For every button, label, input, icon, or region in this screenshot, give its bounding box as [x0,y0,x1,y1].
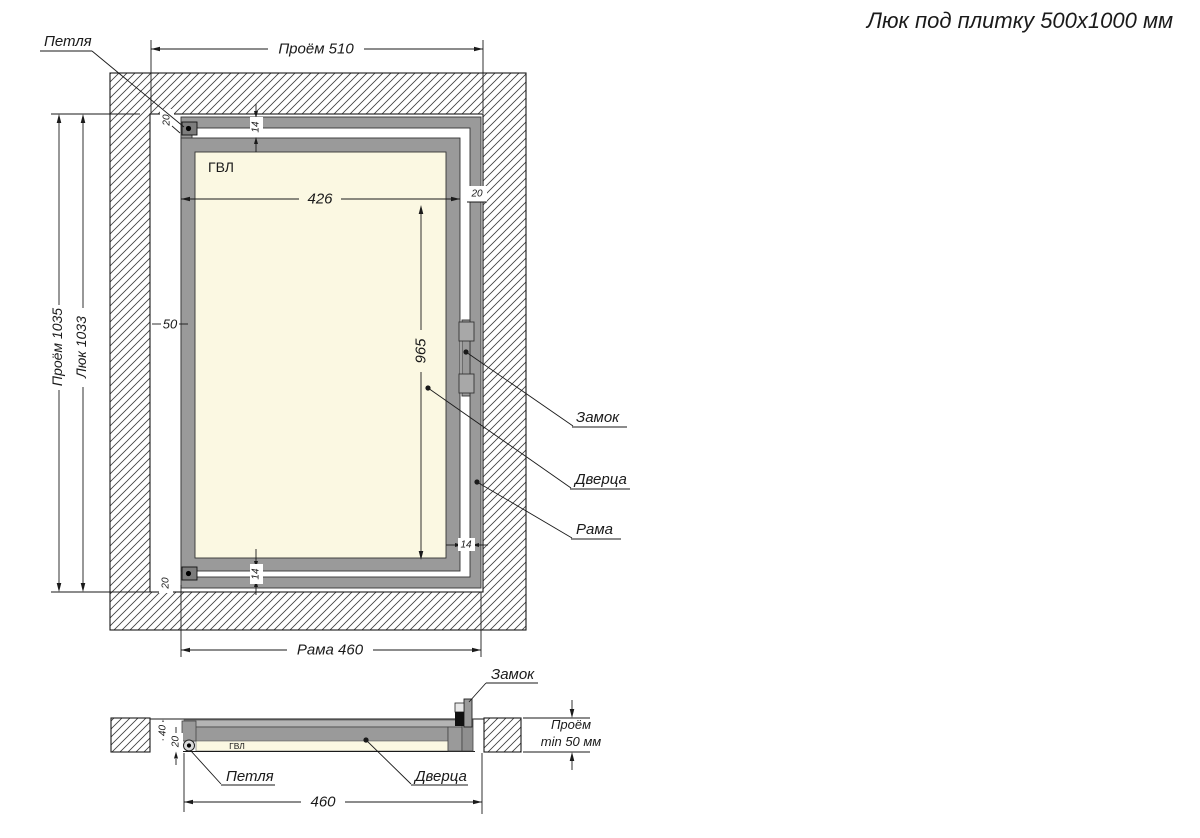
dim-edge-right: 20 [467,186,487,202]
hinge-icon-section [182,721,196,751]
section-door-body [186,727,448,741]
svg-text:426: 426 [307,191,333,208]
gvl-label-front: ГВЛ [208,159,234,175]
technical-drawing: Люк под плитку 500x1000 мм ГВЛ [0,0,1200,838]
label-hinge-section: Петля [191,751,275,785]
section-wall-right-hatch [484,718,521,752]
svg-text:20: 20 [470,189,483,200]
svg-text:460: 460 [310,794,336,811]
svg-text:Рама 460: Рама 460 [297,642,364,659]
svg-text:Петля: Петля [226,768,274,785]
svg-text:40: 40 [158,725,169,737]
svg-text:Замок: Замок [576,409,620,426]
svg-text:Замок: Замок [491,666,535,683]
drawing-canvas: Люк под плитку 500x1000 мм ГВЛ [0,0,1200,838]
dim-section-depth: 40 [156,720,170,742]
section-wall-left-hatch [111,718,150,752]
svg-text:14: 14 [251,121,262,133]
dim-clearance: Проём min 50 мм [523,700,601,770]
hinge-top-icon [182,122,197,135]
dim-edge-bottom: 20 [159,572,173,593]
svg-text:965: 965 [413,338,430,364]
hinge-bottom-icon [182,567,197,580]
label-lock-section: Замок [469,666,538,702]
svg-text:Дверца: Дверца [573,471,627,488]
svg-text:50: 50 [163,317,178,332]
svg-text:min 50 мм: min 50 мм [541,734,602,749]
svg-text:20: 20 [161,577,172,590]
gvl-panel [195,152,446,558]
section-view: ГВЛ Замок Петля [111,666,601,814]
svg-text:14: 14 [251,568,262,580]
svg-text:14: 14 [460,540,472,551]
svg-text:Проём 510: Проём 510 [278,41,354,58]
section-frame-flange [184,720,466,727]
svg-text:Рама: Рама [576,521,613,538]
svg-text:Проём 1035: Проём 1035 [49,308,65,386]
drawing-title: Люк под плитку 500x1000 мм [865,8,1173,33]
svg-text:Люк 1033: Люк 1033 [73,316,89,379]
svg-text:Петля: Петля [44,33,92,50]
dim-hatch-height: Люк 1033 [73,114,89,592]
gvl-label-section: ГВЛ [229,741,245,751]
svg-text:Дверца: Дверца [413,768,467,785]
dim-section-panel-thickness: 20 [169,727,183,765]
svg-text:20: 20 [171,736,182,749]
svg-text:Проём: Проём [551,717,591,732]
front-view: ГВЛ Проём 510 [40,33,630,659]
